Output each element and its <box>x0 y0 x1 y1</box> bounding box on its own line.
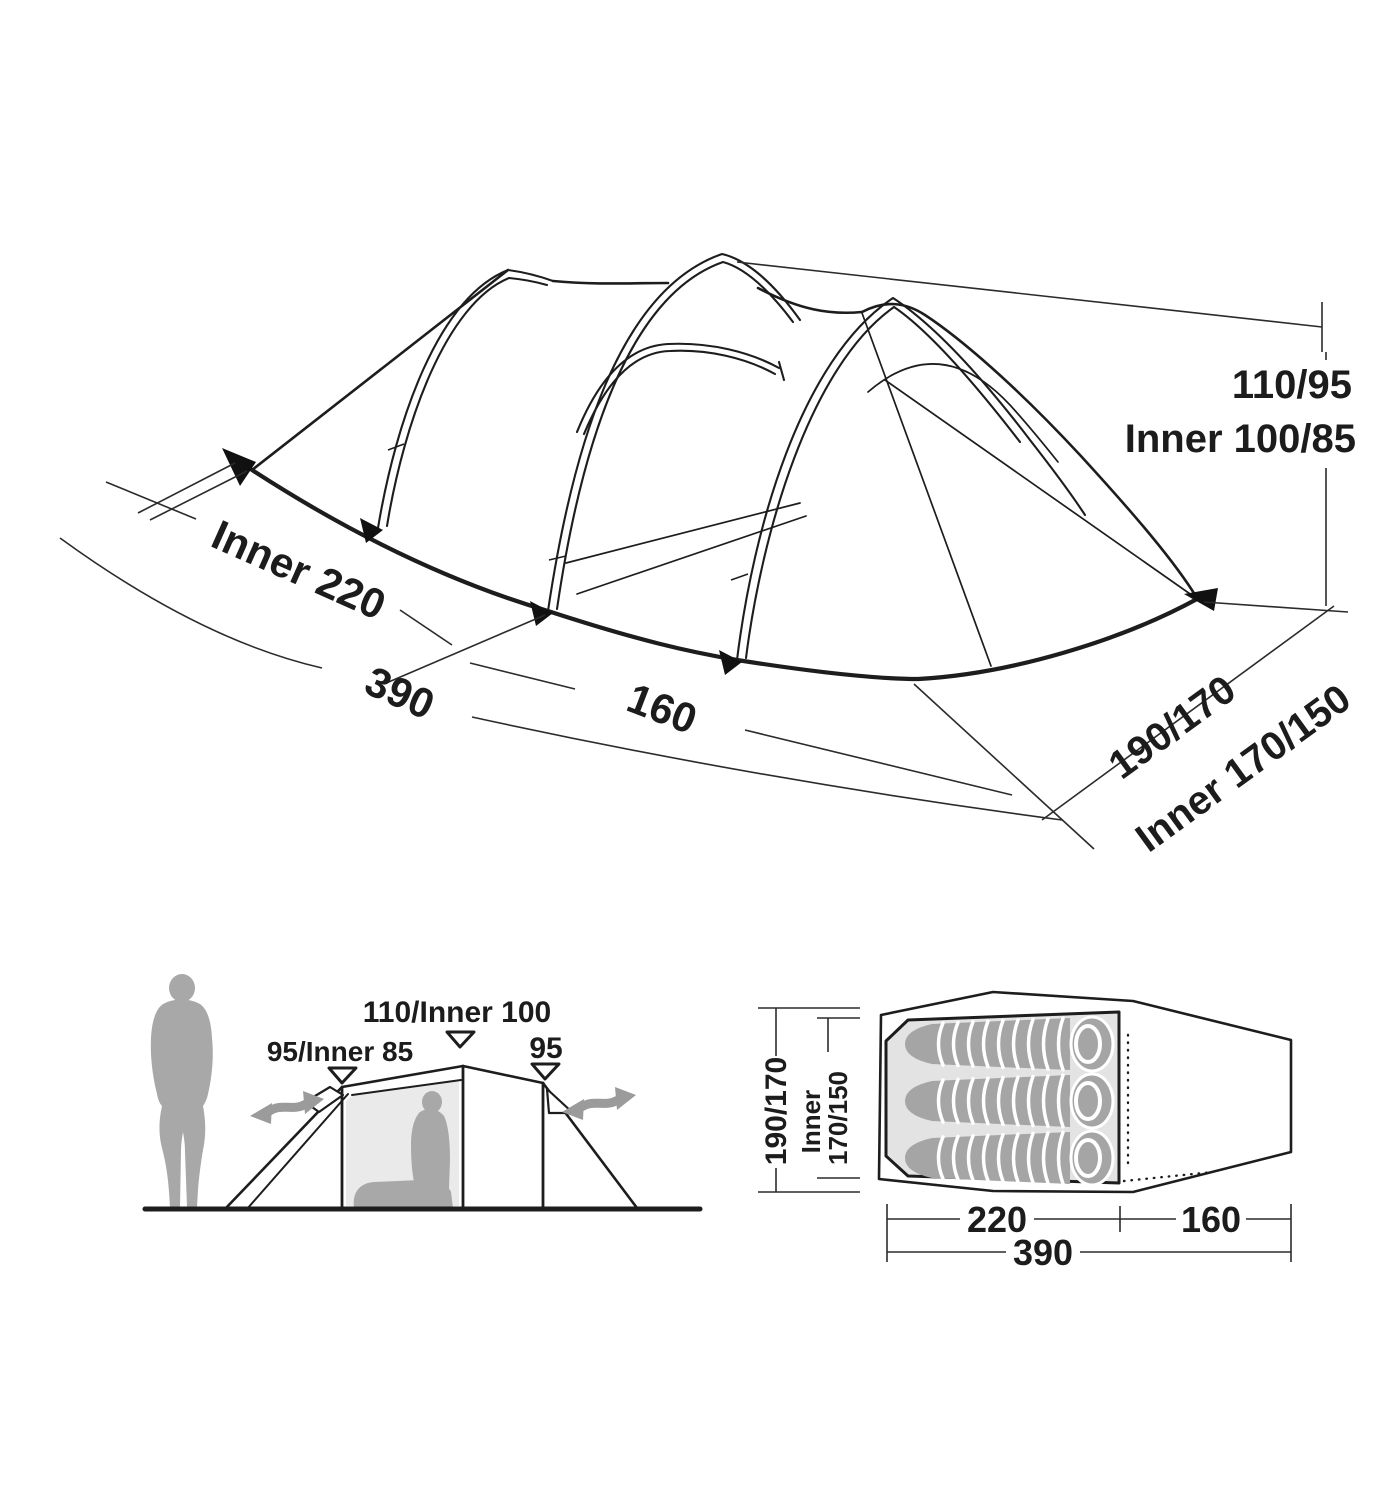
perspective-view: 110/95 Inner 100/85 Inner 220 390 160 19… <box>60 254 1359 861</box>
plan-label-width-inner-line2: 170/150 <box>823 1071 853 1165</box>
sleeping-bag <box>905 1131 1113 1185</box>
ridge-right <box>758 288 862 313</box>
inner-tent-arc <box>868 364 1058 462</box>
sleeping-bag <box>905 1074 1113 1128</box>
groundsheet-dotted <box>1124 1172 1213 1181</box>
person-silhouette <box>151 974 213 1207</box>
stake-icon <box>1184 588 1218 611</box>
tent-stakes <box>222 448 1218 675</box>
tent-left-edge <box>252 270 508 470</box>
pole-joints <box>388 444 748 580</box>
plan-label-width-inner: Inner 170/150 <box>796 1071 853 1165</box>
label-total-length: 390 <box>358 657 441 728</box>
sleeping-bag <box>905 1017 1113 1071</box>
triangle-marker-icon <box>447 1032 474 1047</box>
label-porch-length: 160 <box>621 674 703 743</box>
left-arch-pole <box>378 270 553 528</box>
label-peak-height-inner: Inner 100/85 <box>1125 417 1356 461</box>
plan-label-porch-length: 160 <box>1181 1199 1241 1240</box>
tent-dimensions-figure: 110/95 Inner 100/85 Inner 220 390 160 19… <box>0 0 1390 1509</box>
plan-label-width-inner-line1: Inner <box>796 1090 826 1154</box>
plan-label-width: 190/170 <box>760 1057 793 1165</box>
side-view: 95/Inner 85 110/Inner 100 95 <box>145 974 700 1209</box>
triangle-marker-icon <box>329 1068 356 1083</box>
label-rear-height: 95/Inner 85 <box>267 1036 413 1067</box>
airflow-arrow-icon <box>562 1087 636 1120</box>
label-main-height: 110/Inner 100 <box>363 996 551 1029</box>
ridge-left <box>553 281 668 284</box>
door-edges <box>566 503 806 594</box>
label-peak-height: 110/95 <box>1232 363 1352 407</box>
plan-view: 190/170 Inner 170/150 220 160 390 <box>758 992 1291 1273</box>
right-arch-pole <box>737 298 1085 660</box>
tent-ground-edge <box>252 470 1197 679</box>
plan-label-total-length: 390 <box>1013 1232 1073 1273</box>
triangle-marker-icon <box>532 1064 559 1079</box>
front-guy-line <box>862 313 991 666</box>
door-rail <box>577 344 784 434</box>
label-front-height: 95 <box>529 1032 562 1065</box>
label-width-inner: Inner 170/150 <box>1128 676 1359 861</box>
